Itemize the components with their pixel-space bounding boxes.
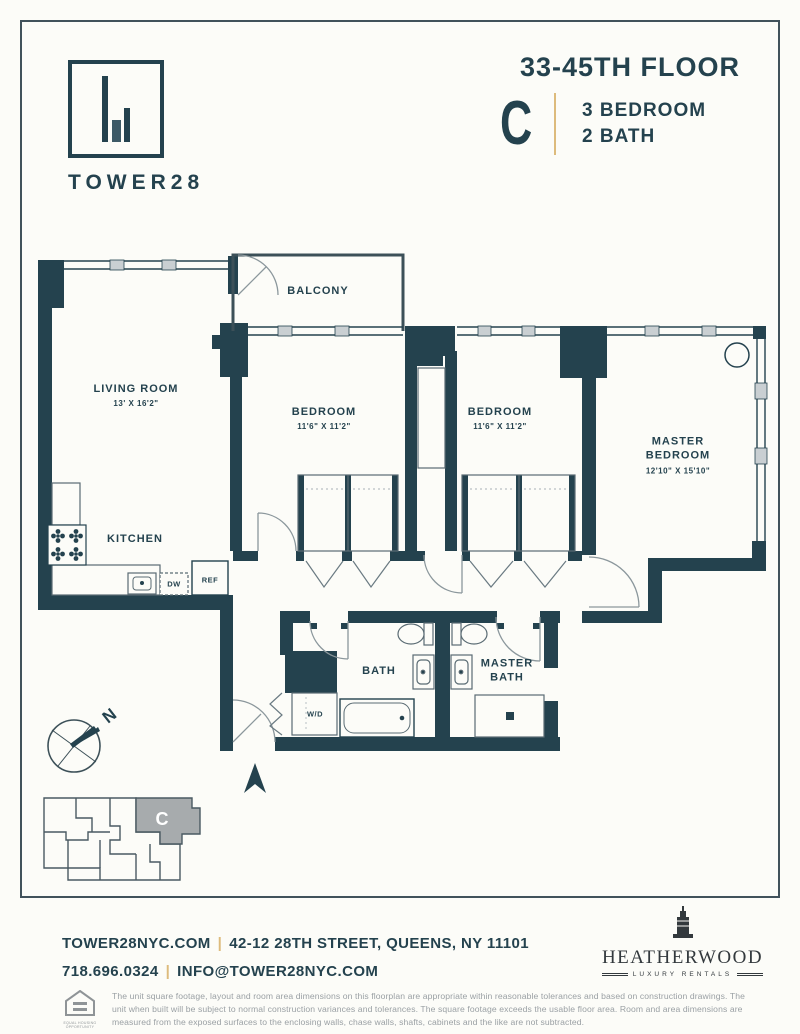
- room-label-balcony: BALCONY: [287, 284, 348, 298]
- svg-text:C: C: [156, 809, 169, 829]
- toilet-icon-bath: [398, 623, 433, 645]
- keyplan-icon: C: [40, 792, 205, 884]
- heatherwood-wordmark: HEATHERWOOD: [600, 947, 765, 969]
- floorplan-page: TOWER28 33-45TH FLOOR C 3 BEDROOM 2 BATH: [0, 0, 800, 1034]
- unit-header: 33-45TH FLOOR C 3 BEDROOM 2 BATH: [500, 52, 760, 155]
- bath-count: 2 BATH: [582, 124, 706, 150]
- toilet-icon-master-bath: [452, 623, 487, 645]
- room-label-master-bath: MASTER BATH: [476, 657, 538, 686]
- kitchen-sink-icon: [128, 573, 156, 594]
- address-text: 42-12 28TH STREET, QUEENS, NY 11101: [229, 935, 529, 952]
- entry-arrow-icon: [244, 763, 266, 793]
- sink-icon-bath: [413, 655, 434, 689]
- washer-dryer-closet: [270, 693, 337, 735]
- unit-letter: C: [500, 93, 535, 155]
- stove-icon: [48, 525, 86, 565]
- dishwasher-label: DW: [167, 580, 181, 589]
- closets: [298, 475, 575, 551]
- keyplan: C: [40, 792, 205, 889]
- svg-text:N: N: [99, 706, 120, 727]
- floor-title: 33-45TH FLOOR: [500, 52, 760, 83]
- compass-icon: N: [40, 706, 130, 778]
- logo-wordmark: TOWER28: [68, 171, 188, 195]
- gold-divider: [554, 93, 556, 155]
- room-label-kitchen: KITCHEN: [107, 532, 163, 546]
- chase-shaft: [418, 368, 445, 468]
- floor-plan: BALCONY LIVING ROOM 13' X 16'2" KITCHEN …: [30, 243, 770, 803]
- email-link[interactable]: INFO@TOWER28NYC.COM: [177, 963, 378, 980]
- tower28-logo: TOWER28: [68, 60, 188, 195]
- room-label-bath: BATH: [362, 664, 396, 678]
- equal-housing-caption: EQUAL HOUSING OPPORTUNITY: [62, 1021, 98, 1029]
- bathtub-icon: [340, 699, 414, 737]
- washer-dryer-label: W/D: [307, 710, 323, 719]
- bedroom-count: 3 BEDROOM: [582, 98, 706, 124]
- column-icon: [725, 343, 749, 367]
- disclaimer-text: The unit square footage, layout and room…: [112, 990, 752, 1029]
- phone-text: 718.696.0324: [62, 963, 159, 980]
- equal-housing: EQUAL HOUSING OPPORTUNITY: [62, 990, 98, 1029]
- sink-icon-master-bath: [451, 655, 472, 689]
- heatherwood-tagline: LUXURY RENTALS: [600, 971, 765, 978]
- disclaimer-section: EQUAL HOUSING OPPORTUNITY The unit squar…: [62, 990, 752, 1029]
- tower28-logo-icon: [68, 60, 164, 158]
- footer-line-2: 718.696.0324|INFO@TOWER28NYC.COM: [62, 958, 529, 986]
- website-link[interactable]: TOWER28NYC.COM: [62, 935, 211, 952]
- room-label-bedroom-1: BEDROOM 11'6" X 11'2": [292, 405, 356, 431]
- bed-bath-info: 3 BEDROOM 2 BATH: [582, 98, 706, 149]
- room-label-bedroom-2: BEDROOM 11'6" X 11'2": [468, 405, 532, 431]
- compass: N: [40, 706, 130, 783]
- equal-housing-icon: [65, 990, 95, 1016]
- footer-line-1: TOWER28NYC.COM|42-12 28TH STREET, QUEENS…: [62, 930, 529, 958]
- room-label-master-bedroom: MASTER BEDROOM 12'10" X 15'10": [638, 435, 718, 476]
- heatherwood-logo: HEATHERWOOD LUXURY RENTALS: [600, 906, 765, 978]
- footer-contact: TOWER28NYC.COM|42-12 28TH STREET, QUEENS…: [62, 930, 529, 986]
- refrigerator-label: REF: [202, 576, 219, 585]
- heatherwood-building-icon: [668, 906, 698, 940]
- shower-icon: [475, 695, 544, 737]
- room-label-living-room: LIVING ROOM 13' X 16'2": [94, 382, 179, 408]
